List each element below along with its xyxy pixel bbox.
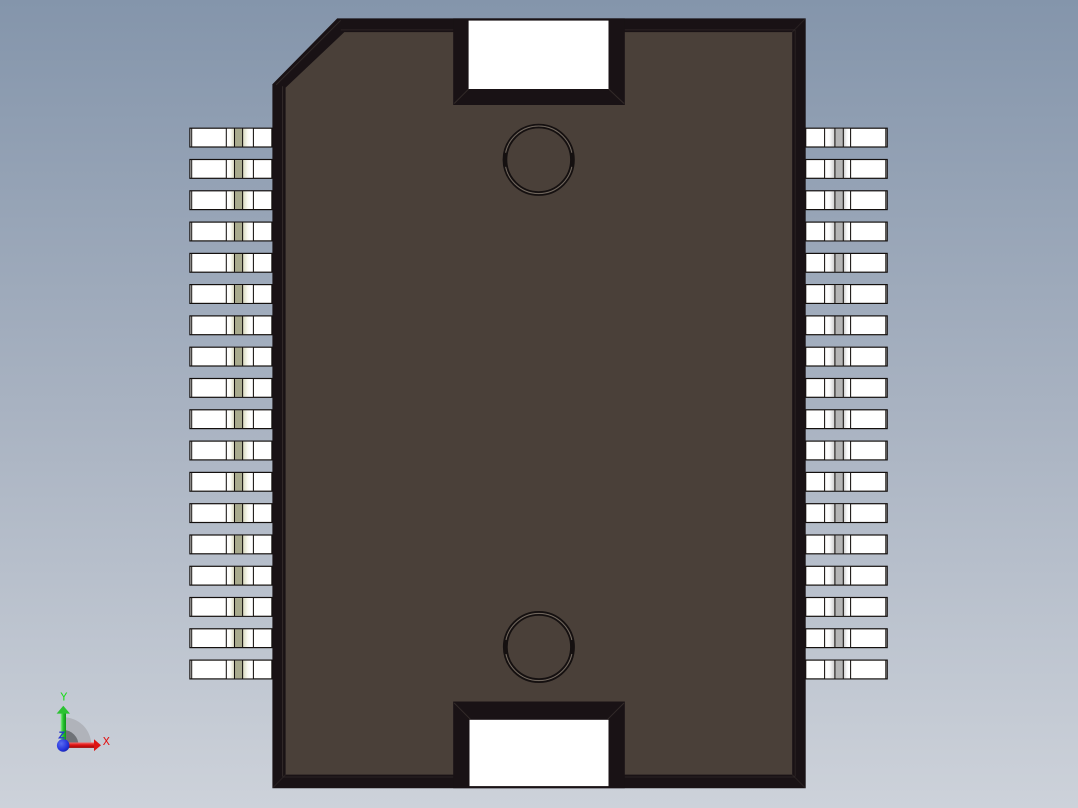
svg-text:Y: Y xyxy=(60,691,67,705)
svg-text:X: X xyxy=(103,735,110,749)
